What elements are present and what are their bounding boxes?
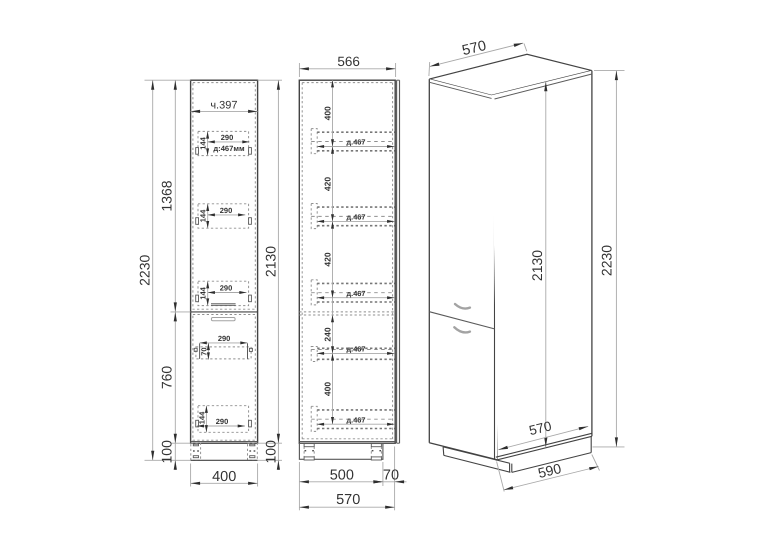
svg-text:400: 400 (323, 106, 333, 120)
svg-text:290: 290 (216, 417, 229, 426)
svg-text:290: 290 (221, 133, 234, 142)
svg-text:290: 290 (218, 334, 231, 343)
svg-text:100: 100 (159, 440, 175, 464)
svg-text:2130: 2130 (529, 250, 545, 281)
svg-text:д.467: д.467 (346, 213, 365, 222)
svg-text:144: 144 (199, 136, 208, 149)
svg-text:ч.397: ч.397 (210, 100, 237, 112)
svg-text:500: 500 (330, 467, 354, 483)
svg-text:420: 420 (323, 177, 333, 191)
svg-text:д:467мм: д:467мм (213, 144, 245, 153)
svg-text:2230: 2230 (598, 245, 614, 276)
svg-text:144: 144 (199, 286, 208, 299)
svg-text:д.467: д.467 (346, 289, 365, 298)
svg-text:420: 420 (323, 252, 333, 266)
svg-text:2230: 2230 (136, 255, 152, 286)
svg-text:290: 290 (220, 284, 233, 293)
svg-text:100: 100 (263, 440, 279, 464)
svg-text:144: 144 (198, 411, 207, 424)
svg-text:70: 70 (383, 467, 399, 483)
svg-text:400: 400 (323, 382, 333, 396)
svg-text:2130: 2130 (263, 246, 279, 277)
svg-text:д.467: д.467 (346, 415, 365, 424)
svg-text:д.467: д.467 (346, 138, 365, 147)
svg-text:290: 290 (220, 206, 233, 215)
svg-text:570: 570 (336, 492, 360, 508)
svg-text:70: 70 (200, 347, 209, 355)
svg-text:760: 760 (159, 366, 175, 390)
svg-text:144: 144 (199, 209, 208, 222)
svg-text:1368: 1368 (159, 180, 175, 211)
svg-text:566: 566 (337, 54, 360, 69)
svg-text:240: 240 (323, 327, 333, 341)
svg-text:400: 400 (212, 469, 236, 485)
svg-text:д.467: д.467 (346, 345, 365, 354)
